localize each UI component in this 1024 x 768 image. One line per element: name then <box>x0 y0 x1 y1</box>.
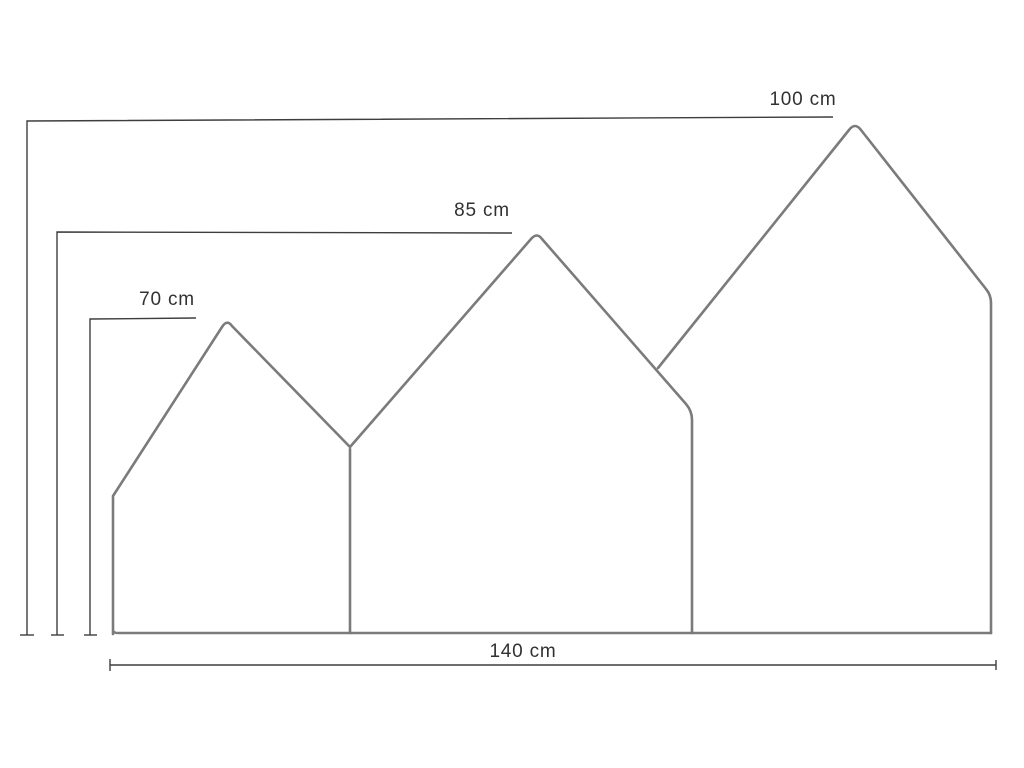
dimension-85cm-line <box>57 232 512 635</box>
base-line <box>114 632 991 633</box>
dimension-140cm-label: 140 cm <box>489 641 556 662</box>
headboard-silhouette-path <box>113 236 692 635</box>
headboard-outline-group <box>113 126 991 634</box>
dimension-70cm-label: 70 cm <box>139 289 195 310</box>
dimension-labels-group: 100 cm 85 cm 70 cm 140 cm <box>139 89 836 662</box>
dimension-70cm-line <box>90 318 196 635</box>
dimension-85cm-label: 85 cm <box>454 200 510 221</box>
dimension-100cm-label: 100 cm <box>769 89 836 110</box>
dimension-diagram: 100 cm 85 cm 70 cm 140 cm <box>0 0 1024 768</box>
tall-house-outline-path <box>658 126 991 633</box>
diagram-canvas: 100 cm 85 cm 70 cm 140 cm <box>0 0 1024 768</box>
dimension-100cm-line <box>27 117 833 635</box>
